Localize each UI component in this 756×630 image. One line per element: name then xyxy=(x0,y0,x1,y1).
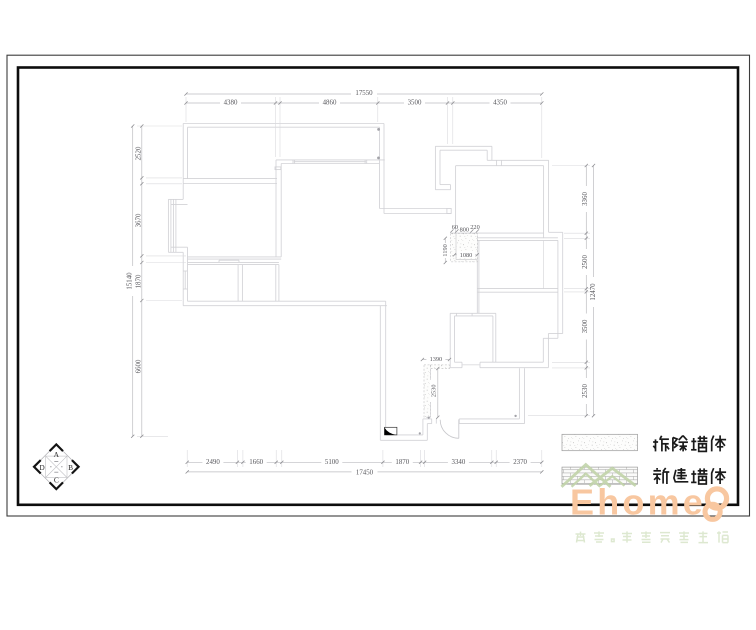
svg-text:4860: 4860 xyxy=(323,100,337,107)
svg-text:3360: 3360 xyxy=(582,192,589,206)
svg-text:B: B xyxy=(68,463,73,472)
svg-text:1190: 1190 xyxy=(442,244,449,256)
svg-text:3500: 3500 xyxy=(582,319,589,333)
svg-text:A: A xyxy=(54,450,60,459)
svg-text:5100: 5100 xyxy=(325,459,339,466)
svg-text:15140: 15140 xyxy=(127,272,134,290)
svg-text:17550: 17550 xyxy=(355,90,373,97)
svg-text:1870: 1870 xyxy=(135,274,142,288)
svg-text:220: 220 xyxy=(470,224,479,231)
svg-text:2520: 2520 xyxy=(135,146,142,160)
svg-text:2530: 2530 xyxy=(431,385,438,398)
svg-text:17450: 17450 xyxy=(356,470,374,477)
svg-text:800: 800 xyxy=(460,227,469,234)
svg-text:3670: 3670 xyxy=(135,213,142,227)
svg-text:4350: 4350 xyxy=(493,100,507,107)
svg-text:C: C xyxy=(54,476,59,485)
svg-text:2530: 2530 xyxy=(582,384,589,398)
svg-text:1660: 1660 xyxy=(249,459,263,466)
svg-text:4380: 4380 xyxy=(224,100,238,107)
svg-text:D: D xyxy=(39,463,45,472)
svg-text:Ehome: Ehome xyxy=(570,482,706,523)
svg-text:2490: 2490 xyxy=(206,459,220,466)
svg-text:2500: 2500 xyxy=(582,255,589,269)
svg-text:1870: 1870 xyxy=(395,459,409,466)
svg-text:1080: 1080 xyxy=(460,252,473,259)
svg-text:1390: 1390 xyxy=(430,356,443,363)
svg-text:3340: 3340 xyxy=(452,459,466,466)
svg-text:2370: 2370 xyxy=(513,459,527,466)
svg-text:6600: 6600 xyxy=(135,359,142,373)
svg-text:60: 60 xyxy=(452,224,458,231)
svg-text:3500: 3500 xyxy=(408,100,422,107)
svg-text:12470: 12470 xyxy=(590,283,597,301)
